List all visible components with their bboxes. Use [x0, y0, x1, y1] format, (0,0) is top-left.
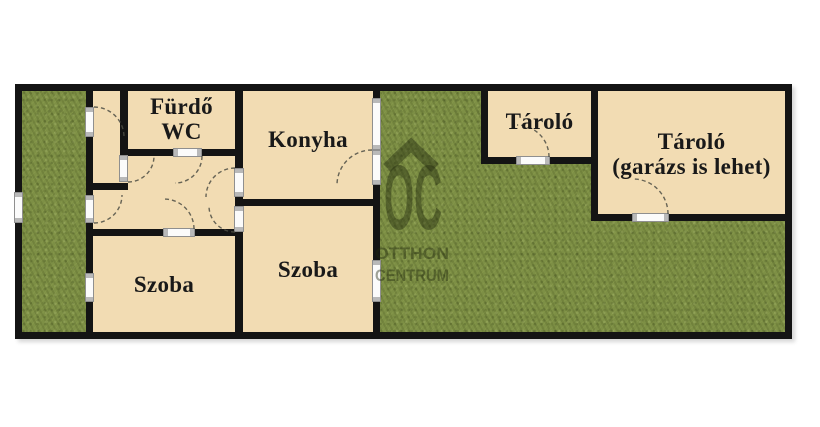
window-room-middle: [372, 260, 381, 302]
label-bathroom: Fürdő WC: [128, 94, 235, 145]
label-room-middle: Szoba: [243, 257, 373, 282]
label-storage-large: Tároló (garázs is lehet): [598, 129, 785, 180]
wall-anteroom-bottom: [93, 183, 128, 190]
label-storage-large-line1: Tároló: [598, 129, 785, 154]
label-bathroom-line1: Fürdő: [128, 94, 235, 119]
gate-left-outer: [14, 192, 23, 223]
door-hall-garden: [85, 195, 94, 223]
floorplan-image: Fürdő WC Konyha Szoba Szoba Tároló Tárol…: [0, 0, 820, 427]
door-bathroom: [173, 148, 202, 157]
door-room-left: [163, 228, 195, 237]
label-storage-small: Tároló: [488, 109, 591, 134]
door-storage-small: [516, 156, 550, 165]
door-anteroom-hall: [119, 155, 128, 182]
label-storage-large-line2: (garázs is lehet): [598, 154, 785, 179]
label-kitchen: Konyha: [243, 127, 373, 152]
window-kitchen: [372, 98, 381, 150]
wall-kitchen-bottom: [241, 199, 380, 206]
door-entry: [85, 107, 94, 137]
wall-bathroom-left: [120, 91, 128, 156]
door-kitchen-garden: [372, 150, 381, 185]
label-bathroom-line2: WC: [128, 119, 235, 144]
label-room-left: Szoba: [93, 272, 235, 297]
door-hall-room-middle: [234, 206, 244, 232]
door-storage-large: [632, 213, 669, 222]
door-hall-kitchen: [234, 168, 244, 197]
